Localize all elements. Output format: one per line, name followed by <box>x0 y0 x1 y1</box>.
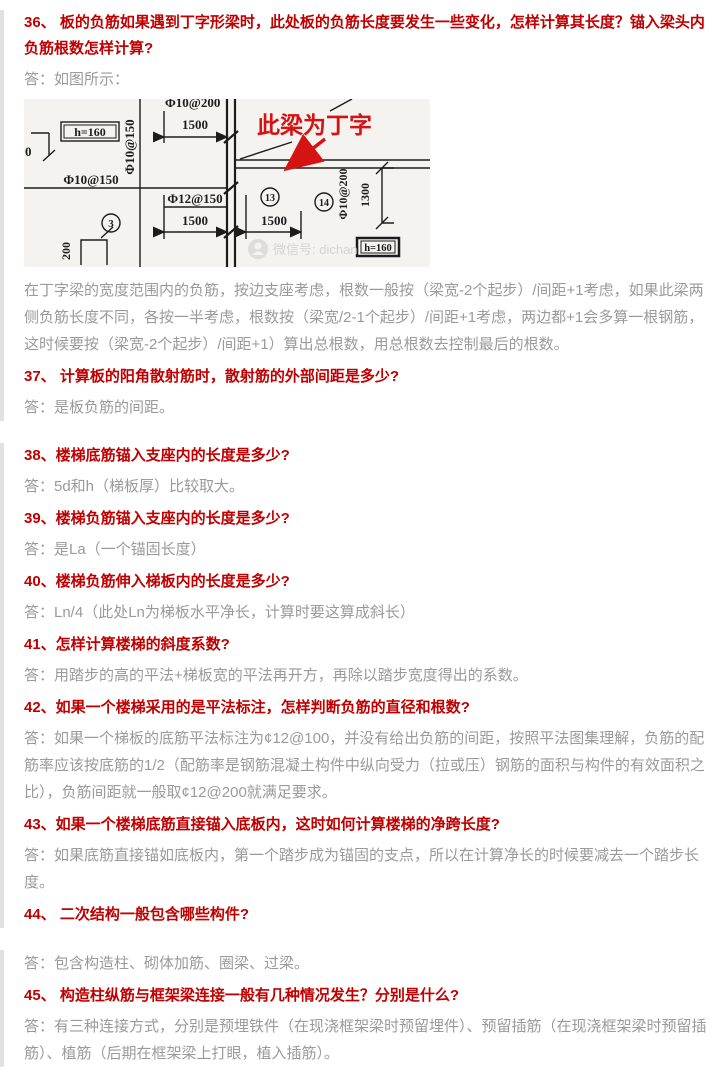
answer-38: 答：5d和h（梯板厚）比较取大。 <box>24 473 713 500</box>
answer-37: 答：是板负筋的间距。 <box>24 394 713 421</box>
qa-section-2: 38、楼梯底筋锚入支座内的长度是多少? 答：5d和h（梯板厚）比较取大。 39、… <box>0 443 727 928</box>
answer-44: 答：包含构造柱、砌体加筋、圈梁、过梁。 <box>24 950 713 977</box>
article-page: 36、 板的负筋如果遇到丁字形梁时，此处板的负筋长度要发生一些变化，怎样计算其长… <box>0 0 727 1067</box>
answer-40: 答：Ln/4（此处Ln为梯板水平净长，计算时要这算成斜长） <box>24 599 713 626</box>
question-40: 40、楼梯负筋伸入梯板内的长度是多少? <box>24 569 713 595</box>
right-dimension-label: 1300 <box>358 183 372 207</box>
answer-45: 答：有三种连接方式，分别是预埋铁件（在现浇框架梁时预留埋件）、预留插筋（在现浇框… <box>24 1013 713 1067</box>
rebar-drawing-svg: Φ10@200 1500 h=160 Φ10@150 0 Φ10@150 Φ12… <box>24 99 430 267</box>
answer-41: 答：用踏步的高的平法+梯板宽的平法再开方，再除以踏步宽度得出的系数。 <box>24 662 713 689</box>
question-41: 41、怎样计算楼梯的斜度系数? <box>24 632 713 658</box>
panel-number-13: 13 <box>265 193 275 204</box>
right-spacing-label: Φ10@200 <box>336 168 350 219</box>
answer-36-intro: 答：如图所示： <box>24 66 713 93</box>
answer-36-body: 在丁字梁的宽度范围内的负筋，按边支座考虑，根数一般按（梁宽-2个起步）/间距+1… <box>24 277 713 358</box>
question-42: 42、如果一个楼梯采用的是平法标注，怎样判断负筋的直径和根数? <box>24 695 713 721</box>
question-45: 45、 构造柱纵筋与框架梁连接一般有几种情况发生？分别是什么? <box>24 983 713 1009</box>
bottom-left-dimension-label: 1500 <box>182 213 208 228</box>
panel-number-14: 14 <box>319 198 329 209</box>
thickness-label-left: h=160 <box>74 125 106 139</box>
qa-section-3: 答：包含构造柱、砌体加筋、圈梁、过梁。 45、 构造柱纵筋与框架梁连接一般有几种… <box>0 950 727 1067</box>
left-cut-dim-label: 0 <box>25 144 32 159</box>
question-36: 36、 板的负筋如果遇到丁字形梁时，此处板的负筋长度要发生一些变化，怎样计算其长… <box>24 10 713 62</box>
left-horizontal-spacing-label: Φ10@150 <box>63 172 118 187</box>
question-37: 37、 计算板的阳角散射筋时，散射筋的外部间距是多少? <box>24 364 713 390</box>
mid-spacing-label: Φ12@150 <box>167 191 222 206</box>
thickness-label-right: h=160 <box>364 243 392 254</box>
question-38: 38、楼梯底筋锚入支座内的长度是多少? <box>24 443 713 469</box>
answer-42: 答：如果一个梯板的底筋平法标注为¢12@100，并没有给出负筋的间距，按照平法图… <box>24 725 713 806</box>
watermark-text: 微信号: dichan <box>273 242 358 257</box>
top-dimension-label: 1500 <box>182 117 208 132</box>
question-44: 44、 二次结构一般包含哪些构件? <box>24 902 713 928</box>
rebar-drawing-image: Φ10@200 1500 h=160 Φ10@150 0 Φ10@150 Φ12… <box>24 99 430 267</box>
question-43: 43、如果一个楼梯底筋直接锚入底板内，这时如何计算楼梯的净跨长度? <box>24 812 713 838</box>
top-spacing-label: Φ10@200 <box>165 99 220 110</box>
question-39: 39、楼梯负筋锚入支座内的长度是多少? <box>24 506 713 532</box>
answer-39: 答：是La（一个锚固长度） <box>24 536 713 563</box>
bottom-right-dimension-label: 1500 <box>261 213 287 228</box>
answer-43: 答：如果底筋直接锚如底板内，第一个踏步成为锚固的支点，所以在计算净长的时候要减去… <box>24 842 713 896</box>
qa-section-1: 36、 板的负筋如果遇到丁字形梁时，此处板的负筋长度要发生一些变化，怎样计算其长… <box>0 10 727 421</box>
left-vertical-spacing-label: Φ10@150 <box>122 119 137 174</box>
tbeam-annotation-text: 此梁为丁字 <box>257 112 372 138</box>
dim-200-label: 200 <box>59 242 73 260</box>
